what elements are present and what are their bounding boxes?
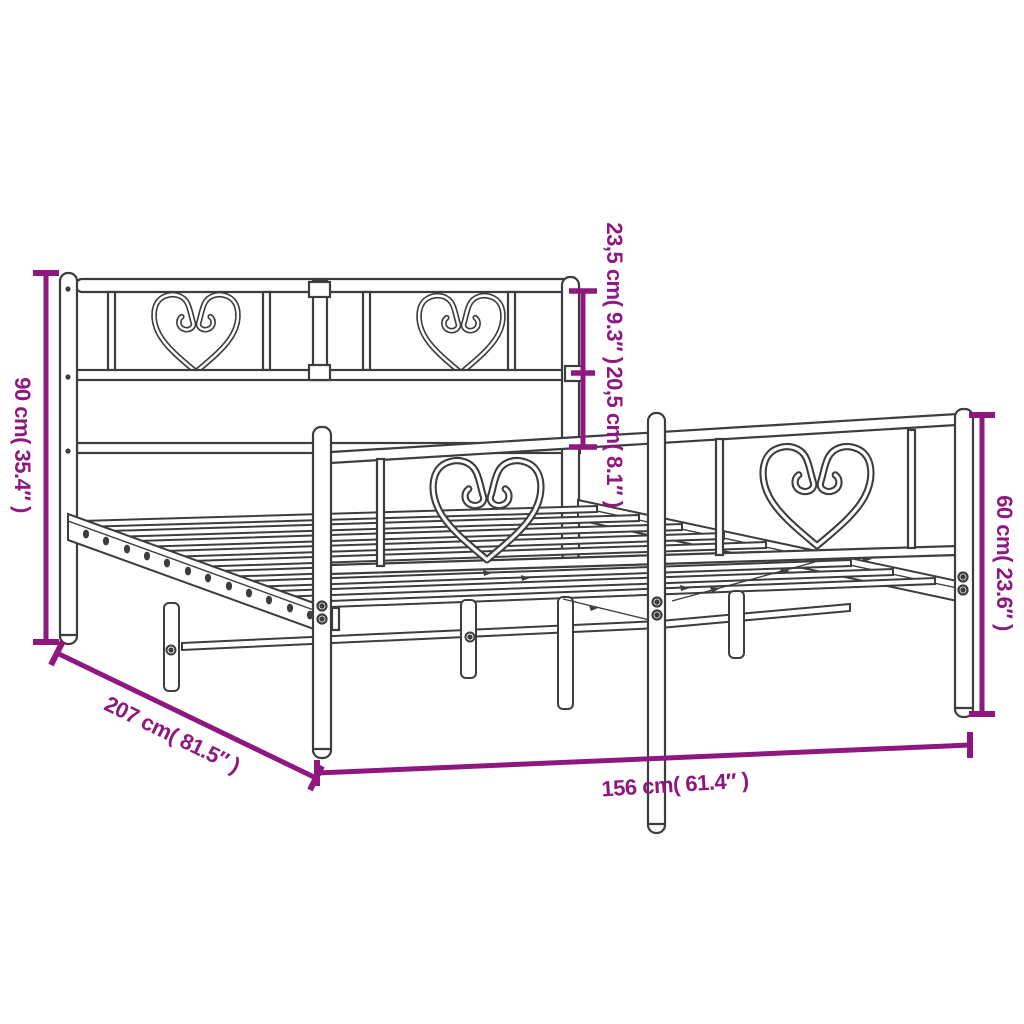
product-dimension-diagram: 90 cm( 35.4″ ) 207 cm( 81.5″ ) 156 cm( 6… [0,0,1024,1024]
support-leg [558,597,573,709]
heart-motif [154,295,238,372]
dimension-label-footboard-height: 60 cm( 23.6″ ) [991,495,1017,631]
connector-sleeve [309,282,330,297]
footboard-mullion [377,459,384,566]
headboard-mullion [108,292,115,370]
dimension-label-headboard-upper-section: 23,5 cm( 9.3″ ) [601,222,627,363]
headboard-left-post [60,273,77,644]
headboard-mullion [263,292,270,370]
under-rail [182,621,660,650]
footboard-left-leg [313,427,331,758]
support-leg [729,591,744,658]
footboard-right-leg [955,409,973,717]
under-rail [660,604,850,628]
headboard-mullion [363,292,370,370]
dimension-line-frame-length [51,641,322,790]
leg-bracket [332,608,339,630]
dimension-label-headboard-height: 90 cm( 35.4″ ) [9,377,35,513]
footboard-mullion [716,439,723,555]
dimension-label-headboard-mid-section: 20,5 cm( 8.1″ ) [601,366,627,507]
heart-motif [419,296,503,373]
dimension-line-headboard-height [33,273,59,642]
connector-sleeve [309,365,330,380]
heart-motif [763,447,871,546]
footboard-center-leg [648,413,665,833]
footboard-mullion [908,430,915,548]
headboard-mullion [508,292,515,370]
bed-frame-drawing [0,0,1024,1024]
